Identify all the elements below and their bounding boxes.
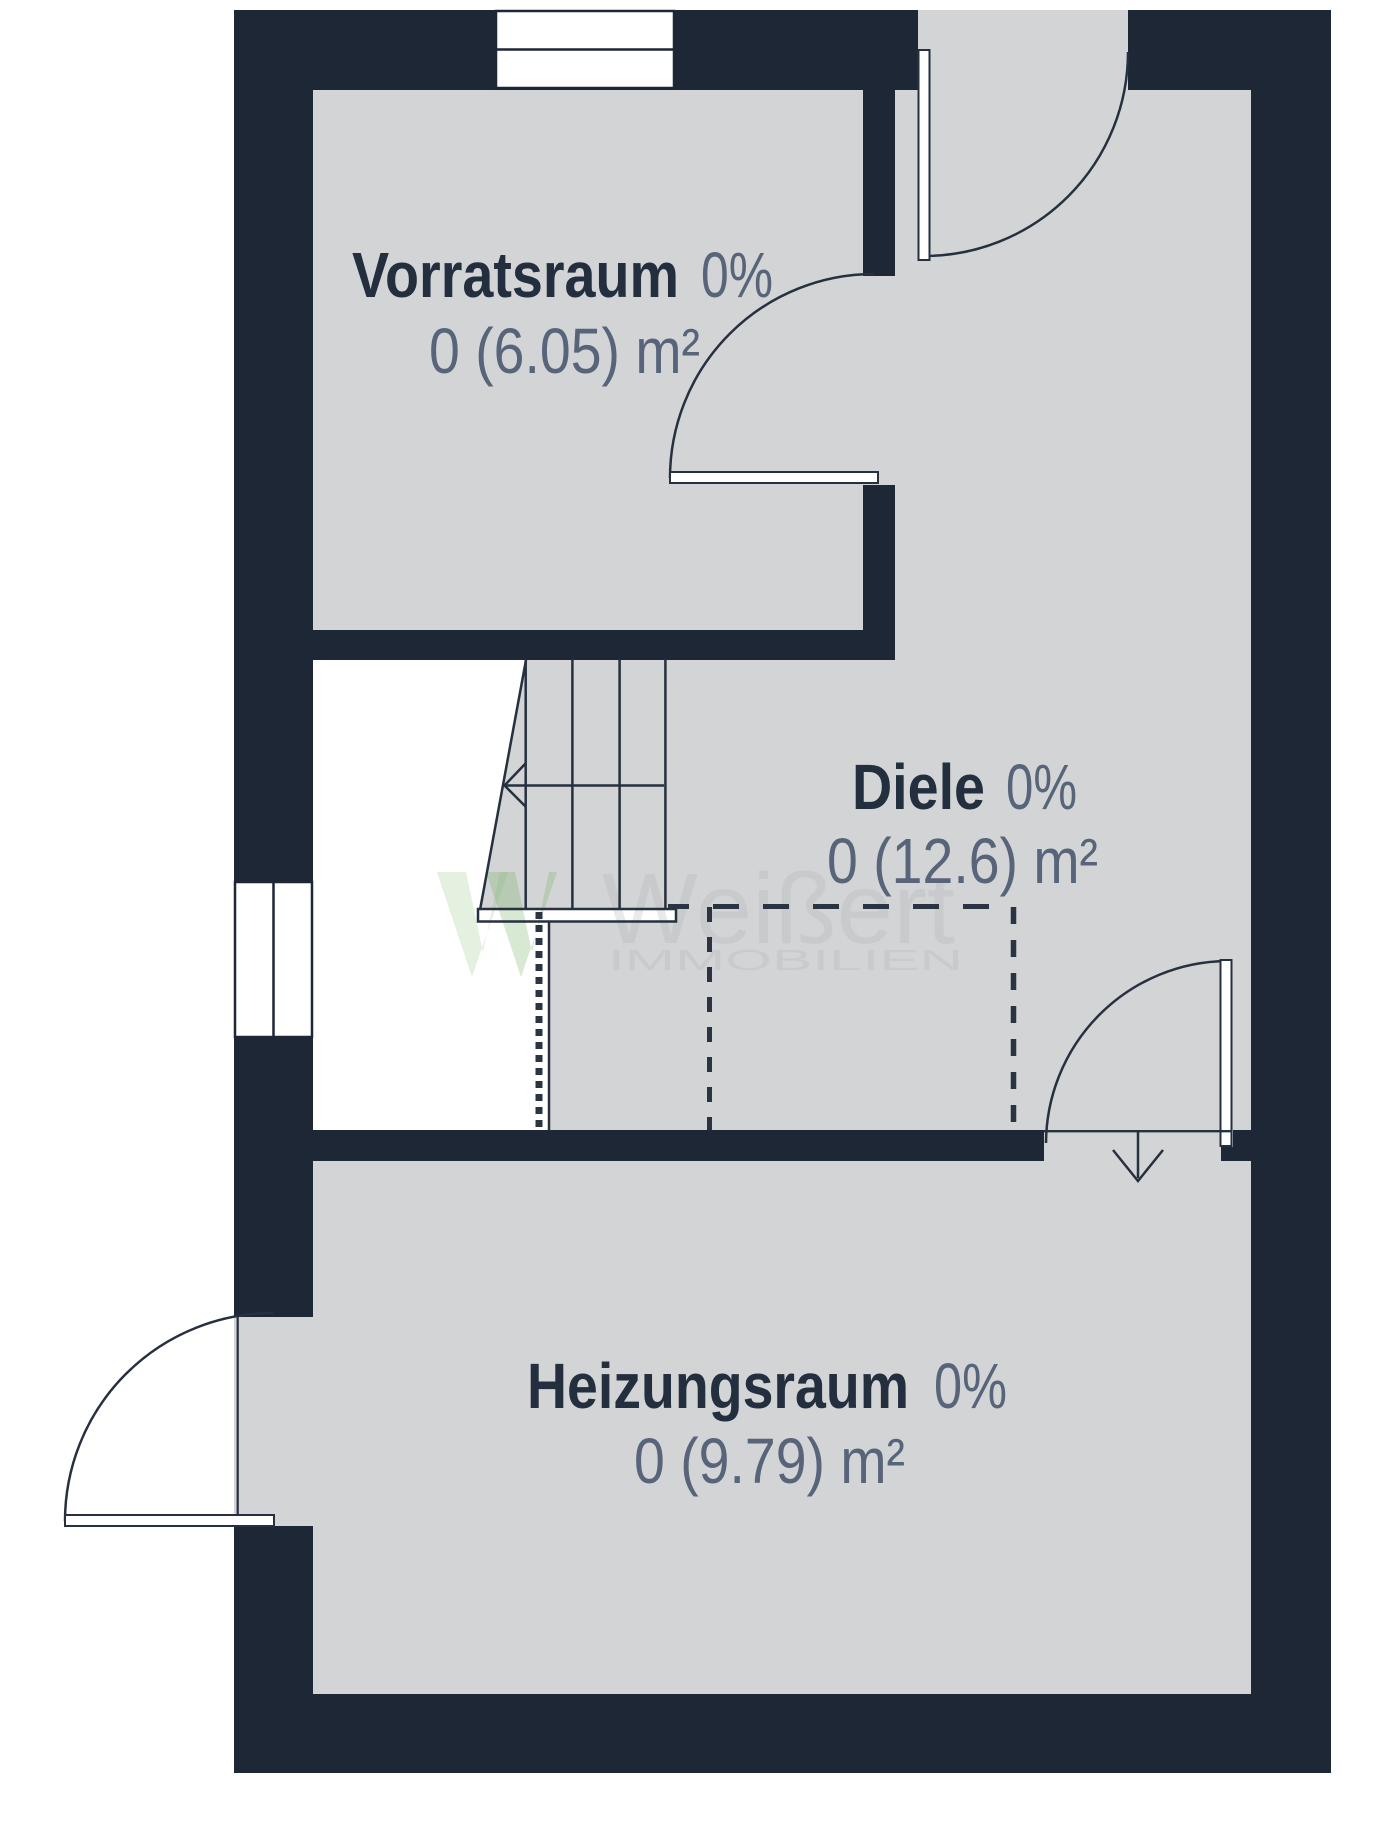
svg-text:0%: 0% — [1006, 751, 1077, 823]
svg-text:0%: 0% — [701, 239, 773, 311]
svg-text:0 (6.05) m²: 0 (6.05) m² — [429, 315, 700, 387]
svg-text:0 (12.6) m²: 0 (12.6) m² — [827, 825, 1098, 897]
svg-text:IMMOBILIEN: IMMOBILIEN — [608, 945, 963, 977]
svg-text:Diele: Diele — [852, 751, 985, 823]
svg-text:0%: 0% — [934, 1350, 1007, 1422]
svg-text:Vorratsraum: Vorratsraum — [352, 239, 679, 311]
svg-text:Heizungsraum: Heizungsraum — [527, 1350, 909, 1422]
svg-text:0 (9.79) m²: 0 (9.79) m² — [634, 1425, 905, 1497]
